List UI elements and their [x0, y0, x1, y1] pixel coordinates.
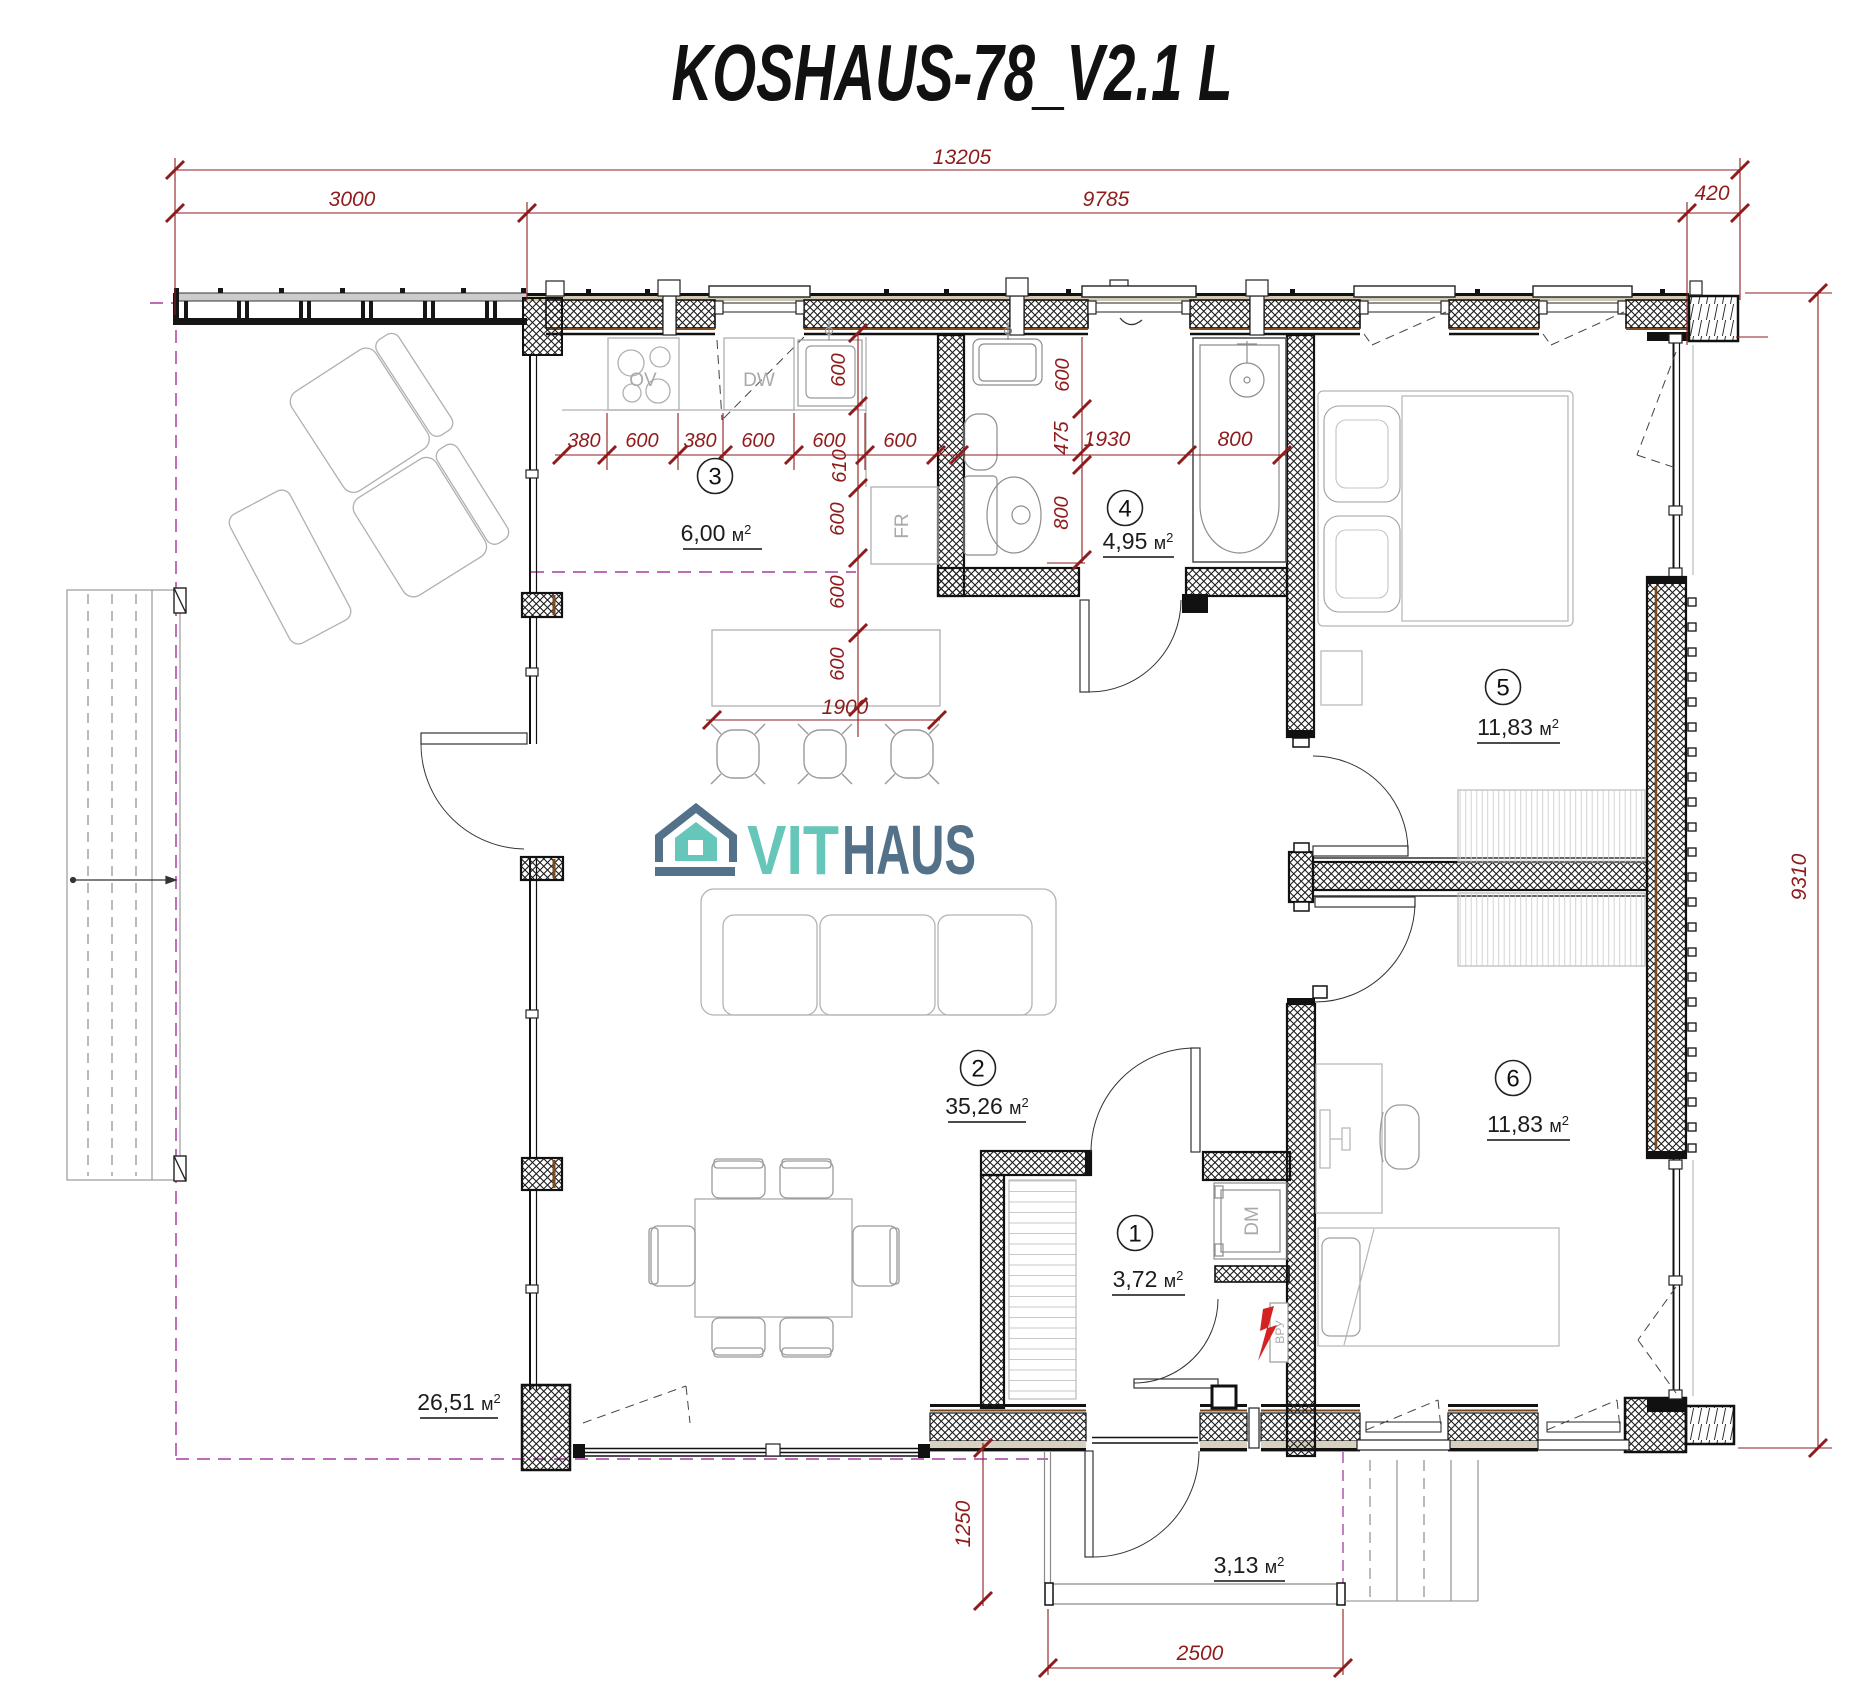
svg-text:2: 2: [971, 1056, 984, 1083]
svg-text:1: 1: [1128, 1221, 1141, 1248]
svg-text:4: 4: [1118, 496, 1131, 523]
svg-text:VIT: VIT: [747, 811, 839, 889]
svg-text:600: 600: [1052, 358, 1074, 391]
svg-text:13205: 13205: [933, 146, 992, 169]
svg-text:600: 600: [828, 353, 850, 386]
svg-text:600: 600: [741, 430, 774, 452]
svg-text:DW: DW: [743, 370, 775, 391]
svg-text:5: 5: [1496, 675, 1509, 702]
svg-text:600: 600: [827, 575, 849, 608]
svg-text:6: 6: [1506, 1066, 1519, 1093]
svg-text:1900: 1900: [822, 696, 869, 719]
svg-text:600: 600: [812, 430, 845, 452]
svg-text:HAUS: HAUS: [842, 811, 976, 889]
svg-text:ВРУ: ВРУ: [1273, 1320, 1287, 1344]
svg-text:3000: 3000: [329, 188, 376, 211]
svg-text:OV: OV: [629, 370, 657, 391]
svg-text:800: 800: [1217, 428, 1252, 451]
svg-text:420: 420: [1694, 182, 1729, 205]
svg-text:610: 610: [829, 449, 851, 482]
svg-text:600: 600: [827, 502, 849, 535]
svg-text:800: 800: [1051, 496, 1073, 529]
svg-text:9310: 9310: [1788, 853, 1811, 900]
svg-text:1930: 1930: [1084, 428, 1131, 451]
svg-text:DM: DM: [1242, 1206, 1263, 1236]
svg-text:600: 600: [883, 430, 916, 452]
svg-text:3: 3: [708, 464, 721, 491]
svg-text:2500: 2500: [1176, 1642, 1224, 1665]
svg-text:600: 600: [625, 430, 658, 452]
svg-text:475: 475: [1051, 420, 1073, 454]
svg-text:380: 380: [567, 430, 600, 452]
svg-text:600: 600: [827, 647, 849, 680]
svg-text:1250: 1250: [952, 1500, 975, 1547]
svg-text:380: 380: [683, 430, 716, 452]
svg-text:9785: 9785: [1083, 188, 1130, 211]
svg-text:KOSHAUS-78_V2.1 L: KOSHAUS-78_V2.1 L: [672, 28, 1233, 117]
svg-text:FR: FR: [892, 513, 913, 538]
